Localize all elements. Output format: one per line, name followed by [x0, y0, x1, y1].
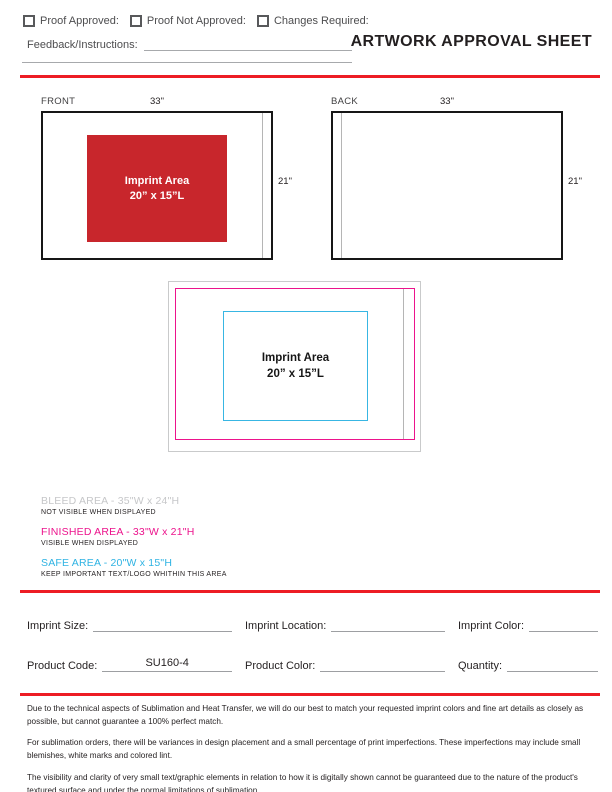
diagram-imprint-line2: 20” x 15”L	[267, 366, 324, 382]
front-imprint-area: Imprint Area 20” x 15”L	[87, 135, 227, 242]
product-code-value[interactable]: SU160-4	[102, 657, 232, 672]
legend-safe-title: SAFE AREA - 20"W x 15"H	[41, 557, 227, 569]
front-imprint-line2: 20” x 15”L	[130, 189, 184, 204]
disclaimer-paragraph-2: For sublimation orders, there will be va…	[27, 736, 589, 762]
proof-approved-checkbox[interactable]	[23, 15, 35, 27]
imprint-size-input-line[interactable]	[93, 617, 232, 632]
product-color-label: Product Color:	[245, 660, 315, 672]
legend-finished-area: FINISHED AREA - 33"W x 21"H VISIBLE WHEN…	[41, 526, 227, 547]
front-width-dimension: 33"	[41, 96, 273, 107]
legend-bleed-title: BLEED AREA - 35"W x 24"H	[41, 495, 227, 507]
product-code-label: Product Code:	[27, 660, 97, 672]
proof-not-approved-label: Proof Not Approved:	[147, 15, 246, 27]
imprint-size-label: Imprint Size:	[27, 620, 88, 632]
proof-approved-option[interactable]: Proof Approved:	[23, 15, 119, 27]
disclaimer-block: Due to the technical aspects of Sublimat…	[27, 702, 589, 792]
proof-not-approved-option[interactable]: Proof Not Approved:	[130, 15, 246, 27]
disclaimer-paragraph-1: Due to the technical aspects of Sublimat…	[27, 702, 589, 728]
page-title: ARTWORK APPROVAL SHEET	[351, 33, 592, 51]
proof-approved-label: Proof Approved:	[40, 15, 119, 27]
product-color-field: Product Color:	[245, 657, 445, 672]
legend-finished-subtitle: VISIBLE WHEN DISPLAYED	[41, 540, 227, 547]
quantity-input-line[interactable]	[507, 657, 598, 672]
diagram-imprint-line1: Imprint Area	[262, 350, 329, 366]
safe-area-outline: Imprint Area 20” x 15”L	[223, 311, 368, 421]
imprint-color-label: Imprint Color:	[458, 620, 524, 632]
approval-options-row: Proof Approved: Proof Not Approved: Chan…	[23, 15, 369, 27]
quantity-label: Quantity:	[458, 660, 502, 672]
imprint-size-field: Imprint Size:	[27, 617, 232, 632]
changes-required-checkbox[interactable]	[257, 15, 269, 27]
changes-required-option[interactable]: Changes Required:	[257, 15, 369, 27]
middle-divider	[20, 590, 600, 593]
bottom-divider	[20, 693, 600, 696]
diagram-seam-line	[403, 289, 404, 439]
back-height-dimension: 21"	[568, 176, 582, 187]
proof-not-approved-checkbox[interactable]	[130, 15, 142, 27]
legend-bleed-subtitle: NOT VISIBLE WHEN DISPLAYED	[41, 509, 227, 516]
artwork-approval-sheet: Proof Approved: Proof Not Approved: Chan…	[0, 0, 612, 792]
product-color-input-line[interactable]	[320, 657, 445, 672]
front-height-dimension: 21"	[278, 176, 292, 187]
legend-bleed-area: BLEED AREA - 35"W x 24"H NOT VISIBLE WHE…	[41, 495, 227, 516]
imprint-location-field: Imprint Location:	[245, 617, 445, 632]
product-code-field: Product Code: SU160-4	[27, 657, 232, 672]
area-legend: BLEED AREA - 35"W x 24"H NOT VISIBLE WHE…	[41, 495, 227, 588]
disclaimer-paragraph-3: The visibility and clarity of very small…	[27, 771, 589, 792]
imprint-color-field: Imprint Color:	[458, 617, 598, 632]
imprint-color-input-line[interactable]	[529, 617, 598, 632]
top-divider	[20, 75, 600, 78]
front-imprint-line1: Imprint Area	[125, 174, 189, 189]
imprint-location-input-line[interactable]	[331, 617, 445, 632]
back-seam-line	[341, 113, 342, 258]
back-panel-outline	[331, 111, 563, 260]
quantity-field: Quantity:	[458, 657, 598, 672]
back-width-dimension: 33"	[331, 96, 563, 107]
changes-required-label: Changes Required:	[274, 15, 369, 27]
imprint-location-label: Imprint Location:	[245, 620, 326, 632]
feedback-input-line-2[interactable]	[22, 50, 352, 63]
legend-safe-subtitle: KEEP IMPORTANT TEXT/LOGO WHITHIN THIS AR…	[41, 571, 227, 578]
front-seam-line	[262, 113, 263, 258]
legend-safe-area: SAFE AREA - 20"W x 15"H KEEP IMPORTANT T…	[41, 557, 227, 578]
legend-finished-title: FINISHED AREA - 33"W x 21"H	[41, 526, 227, 538]
